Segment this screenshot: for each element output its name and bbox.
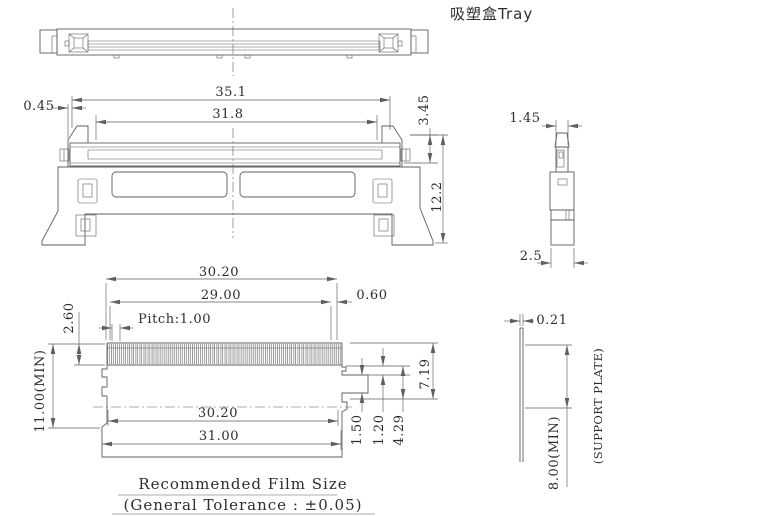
front-left-tab bbox=[68, 126, 88, 167]
support-plate-view: 0.21 8.00(MIN) (SUPPORT PLATE) bbox=[504, 313, 605, 490]
top-right-clip bbox=[379, 34, 402, 52]
drawing-title: 吸塑盒Tray bbox=[450, 5, 533, 23]
front-window-right bbox=[240, 172, 355, 197]
dim-31-00: 31.00 bbox=[199, 429, 239, 444]
dim-31-8: 31.8 bbox=[212, 107, 243, 122]
dim-0-60: 0.60 bbox=[356, 288, 387, 303]
front-body bbox=[42, 167, 433, 245]
dim-3-45: 3.45 bbox=[417, 94, 432, 125]
tray-top-right-cap bbox=[411, 30, 428, 53]
side-neck-clip bbox=[557, 150, 564, 167]
side-neck bbox=[556, 147, 568, 172]
dim-1-20: 1.20 bbox=[372, 414, 387, 445]
side-lower-body bbox=[551, 220, 574, 245]
dim-pitch: Pitch:1.00 bbox=[138, 312, 211, 327]
side-view-dimensions bbox=[537, 120, 588, 268]
dim-2-60: 2.60 bbox=[62, 302, 77, 333]
top-left-clip bbox=[65, 34, 88, 52]
dim-1-50: 1.50 bbox=[350, 414, 365, 445]
dim-0-45: 0.45 bbox=[23, 99, 54, 114]
dim-2-5: 2.5 bbox=[520, 249, 542, 264]
top-view bbox=[40, 8, 428, 76]
dim-30-20-bottom: 30.20 bbox=[198, 406, 238, 421]
support-plate-label: (SUPPORT PLATE) bbox=[591, 348, 605, 464]
dim-0-21: 0.21 bbox=[536, 313, 567, 328]
dim-1-45: 1.45 bbox=[509, 111, 540, 126]
footer-tolerance-label: (General Tolerance : ±0.05) bbox=[124, 496, 363, 514]
front-clips bbox=[76, 179, 394, 236]
engineering-drawing: 0.45 35.1 31.8 3.45 12.2 bbox=[0, 0, 780, 516]
film-bar bbox=[70, 143, 400, 166]
side-cap bbox=[555, 133, 569, 147]
front-right-tab bbox=[382, 126, 402, 167]
dim-29-00: 29.00 bbox=[201, 288, 241, 303]
footer-notes: Recommended Film Size (General Tolerance… bbox=[112, 475, 375, 514]
dim-8-00-min: 8.00(MIN) bbox=[547, 416, 562, 490]
front-window-left bbox=[112, 172, 227, 197]
tray-top-left-cap bbox=[40, 30, 57, 53]
side-mid-band bbox=[551, 210, 574, 220]
dim-7-19: 7.19 bbox=[418, 358, 433, 389]
film-strip-lines bbox=[88, 41, 380, 50]
front-view: 0.45 35.1 31.8 3.45 12.2 bbox=[23, 85, 448, 245]
film-size-view: 30.20 29.00 0.60 Pitch:1.00 2.60 11.00(M… bbox=[33, 265, 438, 457]
drawing-canvas: 0.45 35.1 31.8 3.45 12.2 bbox=[0, 0, 780, 516]
dim-30-20-top: 30.20 bbox=[199, 265, 239, 280]
dim-4-29: 4.29 bbox=[392, 414, 407, 445]
footer-film-size-label: Recommended Film Size bbox=[138, 475, 347, 493]
dim-35-1: 35.1 bbox=[215, 85, 246, 100]
teeth-band bbox=[107, 344, 342, 364]
dim-11-00-min: 11.00(MIN) bbox=[33, 349, 48, 432]
tray-top-body bbox=[57, 29, 411, 55]
front-view-dimensions bbox=[52, 96, 448, 243]
side-view: 1.45 2.5 bbox=[509, 111, 588, 268]
dim-12-2: 12.2 bbox=[430, 181, 445, 212]
side-upper-body bbox=[550, 172, 574, 210]
